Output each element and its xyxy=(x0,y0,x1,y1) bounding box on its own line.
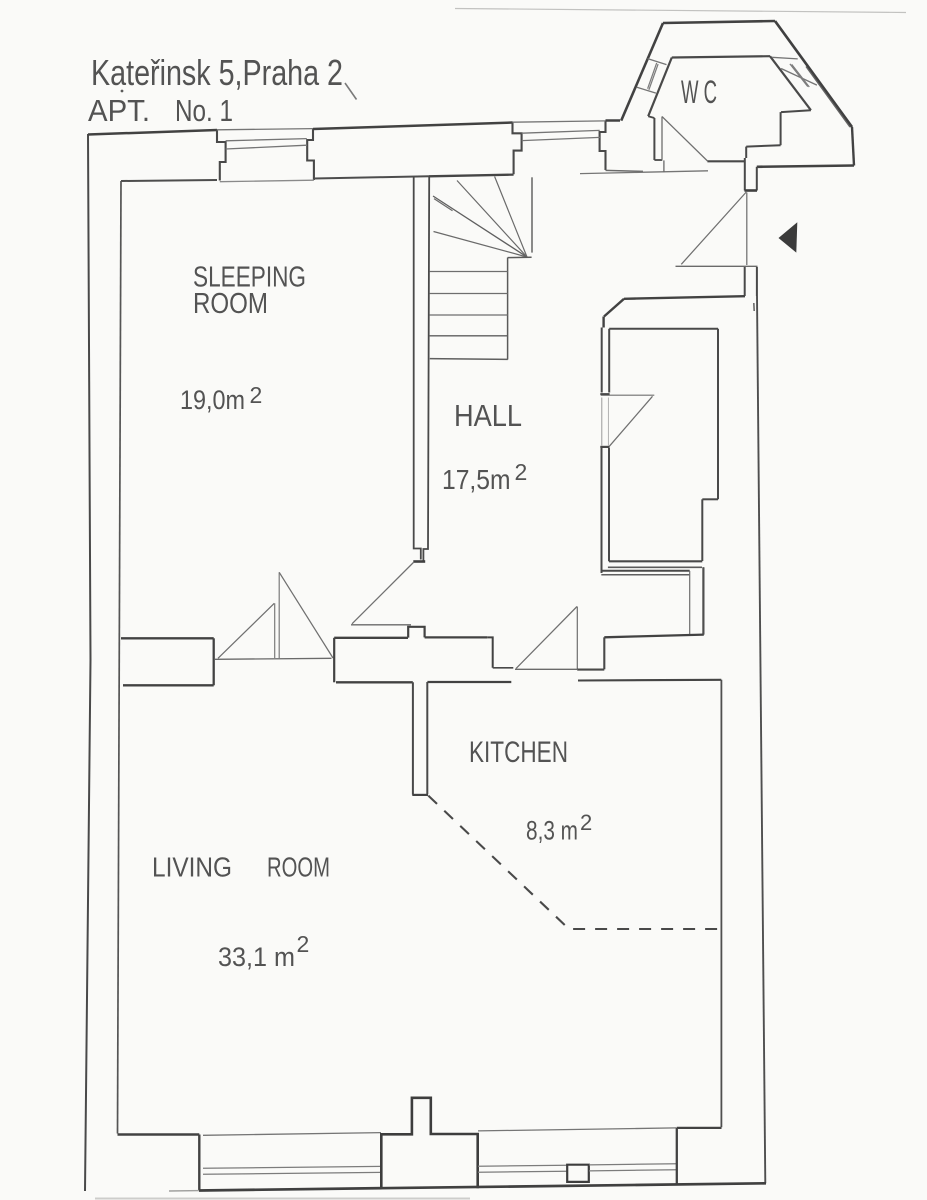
svg-text:2: 2 xyxy=(297,931,310,957)
svg-text:8,3 m: 8,3 m xyxy=(526,816,578,846)
svg-text:No. 1: No. 1 xyxy=(175,93,233,128)
svg-text:2: 2 xyxy=(515,459,528,485)
svg-text:17,5m: 17,5m xyxy=(442,464,511,495)
svg-text:2: 2 xyxy=(580,810,592,835)
svg-text:HALL: HALL xyxy=(454,398,522,433)
svg-text:KITCHEN: KITCHEN xyxy=(469,736,568,769)
svg-text:APT.: APT. xyxy=(88,93,150,128)
svg-text:2: 2 xyxy=(250,382,263,408)
svg-text:ROOM: ROOM xyxy=(193,288,268,320)
svg-text:19,0m: 19,0m xyxy=(180,385,245,415)
svg-text:33,1 m: 33,1 m xyxy=(218,942,295,972)
svg-text:ROOM: ROOM xyxy=(267,852,330,883)
svg-text:LIVING: LIVING xyxy=(152,852,232,883)
svg-text:W C: W C xyxy=(681,74,717,110)
svg-text:Kateřinsk 5,Praha 2: Kateřinsk 5,Praha 2 xyxy=(91,52,343,93)
